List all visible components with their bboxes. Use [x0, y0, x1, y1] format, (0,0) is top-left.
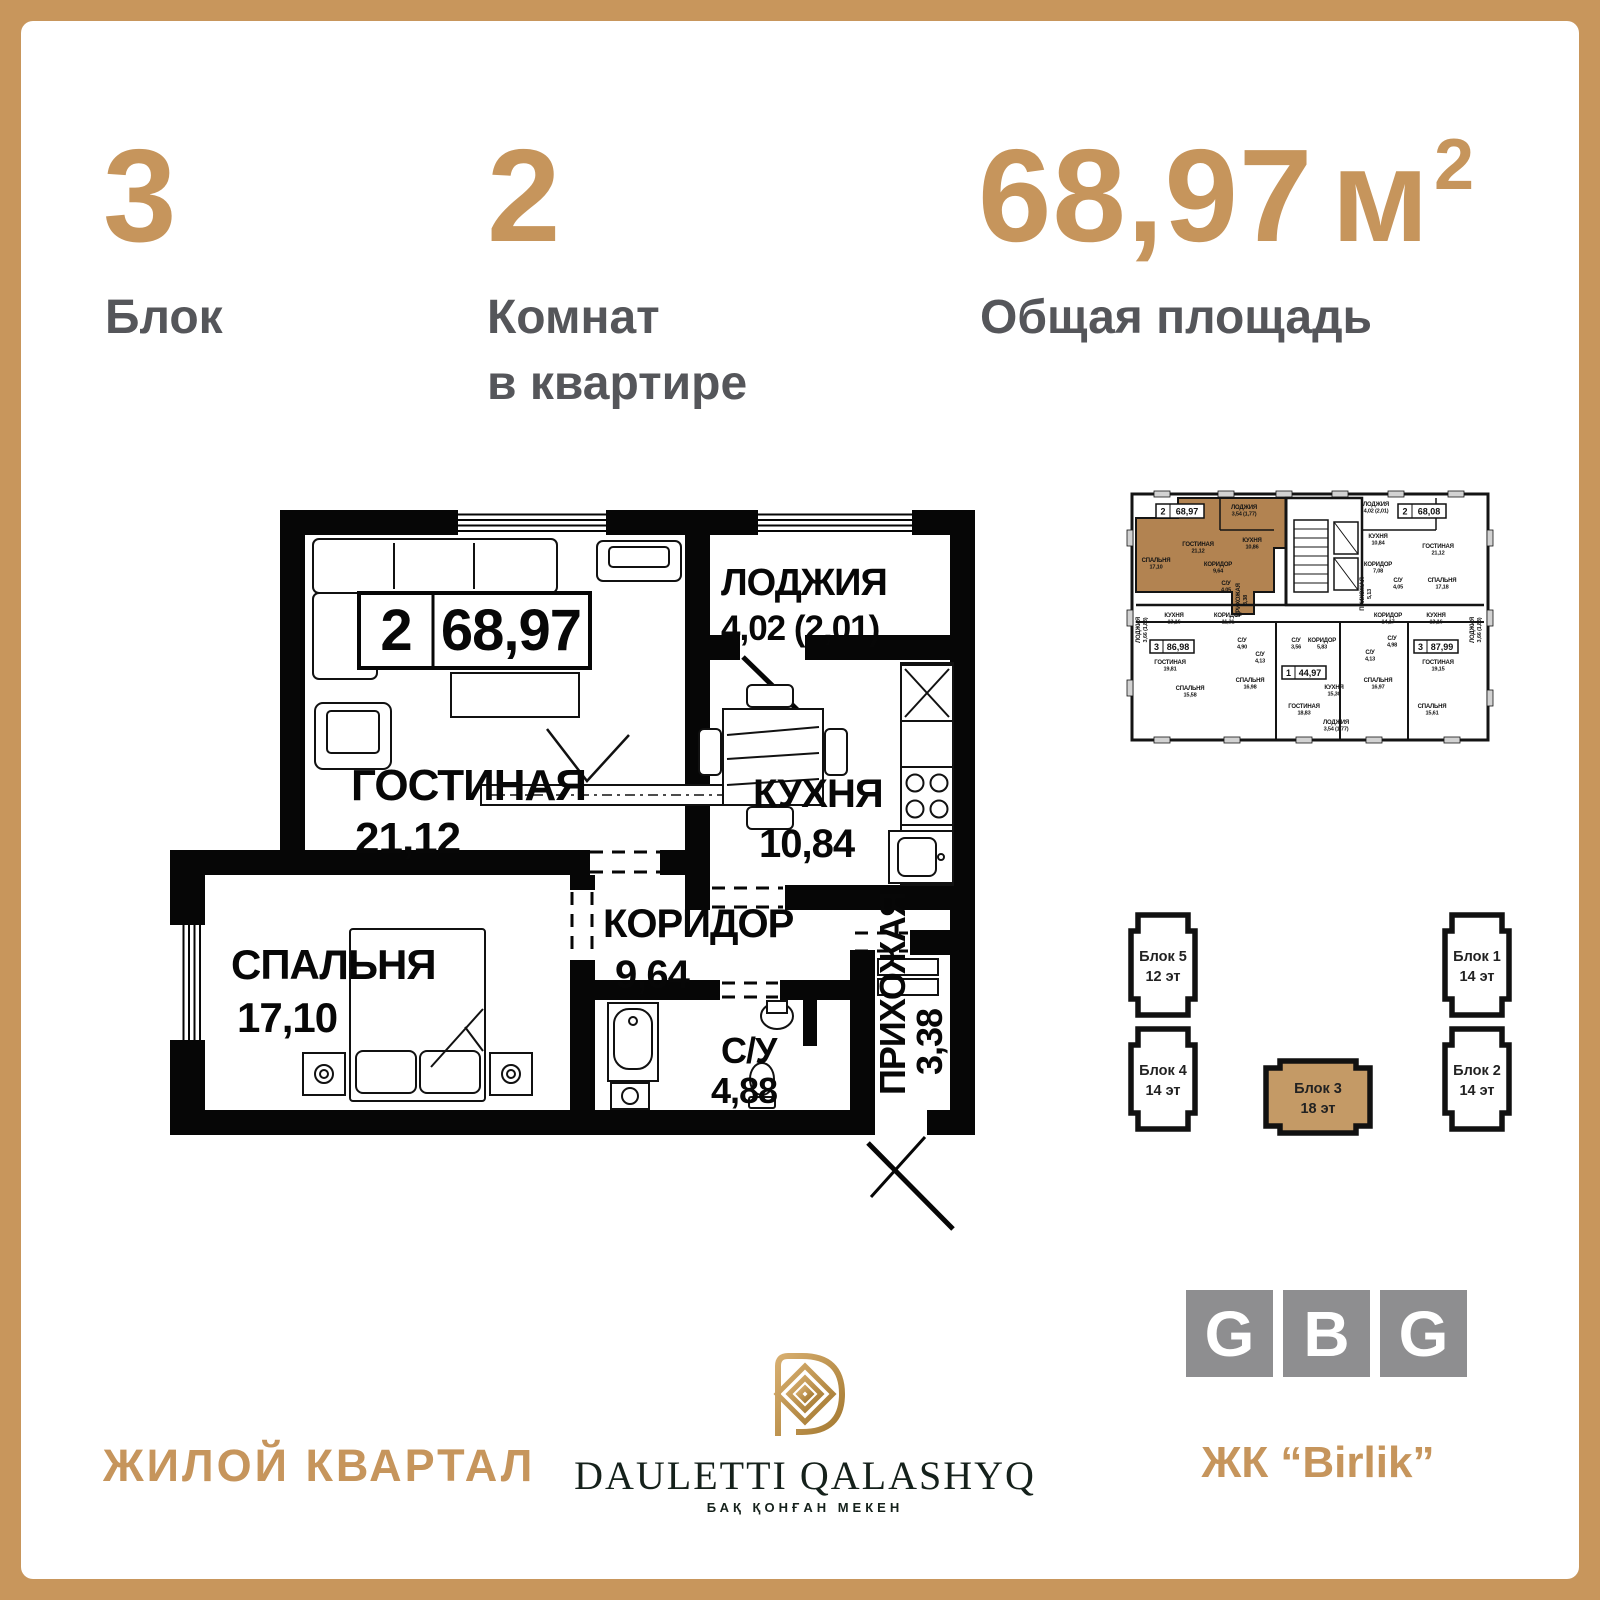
coffee-table	[451, 673, 579, 717]
chair	[825, 729, 847, 775]
fp-label: КУХНЯ	[1324, 685, 1343, 691]
block-5-floors: 12 эт	[1145, 969, 1180, 985]
fp-label: КОРИДОР	[1204, 562, 1232, 568]
block-number: 3	[103, 130, 177, 262]
fp-label: 14,17	[1382, 620, 1395, 626]
block-5-shape	[1131, 915, 1195, 1015]
block-4-shape	[1131, 1029, 1195, 1129]
fp-label: КУХНЯ	[1164, 613, 1183, 619]
fp-label: 4,98	[1387, 643, 1397, 649]
complex-name: ЖК “Birlik”	[1146, 1438, 1490, 1488]
plate-b-area: 68,08	[1418, 507, 1441, 517]
fp-label: СПАЛЬНЯ	[1236, 678, 1265, 684]
fp-label: 4,05	[1221, 588, 1231, 594]
developer-tagline: БАҚ ҚОНҒАН МЕКЕН	[505, 1500, 1105, 1515]
room-kitchen-area: 10,84	[759, 822, 856, 866]
fp-label: 5,13	[1367, 589, 1373, 599]
fp-label: КОРИДОР	[1374, 613, 1402, 619]
block-2-shape	[1445, 1029, 1509, 1129]
room-bedroom-name: СПАЛЬНЯ	[231, 941, 436, 988]
plate-b-rooms: 2	[1402, 507, 1407, 517]
fp-label: ГОСТИНАЯ	[1422, 544, 1454, 550]
rooms-number: 2	[487, 130, 561, 262]
plate-e-rooms: 3	[1418, 642, 1423, 652]
fp-label: КУХНЯ	[1426, 613, 1445, 619]
block-3-shape	[1266, 1061, 1370, 1133]
badge-area: 68,97	[441, 598, 581, 663]
plate-a-area: 68,97	[1176, 507, 1199, 517]
fp-label: 3,66 (1,83)	[1477, 617, 1483, 642]
fp-label: ЛОДЖИЯ	[1470, 617, 1476, 643]
fp-label: 4,13	[1255, 659, 1265, 665]
total-area-sup: 2	[1434, 129, 1475, 201]
fp-label: 19,81	[1164, 667, 1177, 673]
room-wc-name: С/У	[721, 1030, 778, 1071]
block-1-floors: 14 эт	[1459, 969, 1494, 985]
fp-label: ПРИХОЖАЯ	[1236, 583, 1242, 617]
plan-badge: 2 68,97	[359, 593, 590, 668]
badge-rooms: 2	[380, 598, 411, 663]
fp-label: 21,12	[1192, 549, 1205, 555]
block-4-name: Блок 4	[1139, 1063, 1187, 1079]
fp-label: 16,97	[1372, 685, 1385, 691]
fp-label: СПАЛЬНЯ	[1142, 558, 1171, 564]
gbg-letter-b: B	[1283, 1290, 1370, 1377]
rooms-label-line1: Комнат	[487, 285, 747, 351]
fp-label: СПАЛЬНЯ	[1176, 686, 1205, 692]
pillow	[356, 1051, 416, 1093]
room-kitchen-name: КУХНЯ	[753, 772, 883, 816]
total-area-label: Общая площадь	[980, 285, 1372, 351]
gbg-letter-g2: G	[1380, 1290, 1467, 1377]
block-3-floors: 18 эт	[1300, 1101, 1335, 1117]
fp-label: 5,83	[1317, 645, 1327, 651]
gbg-logo: G B G	[1186, 1290, 1467, 1377]
fp-label: 9,64	[1213, 569, 1224, 575]
fp-label: 10,84	[1372, 541, 1386, 547]
fp-label: 3,66 (1,83)	[1143, 617, 1149, 642]
room-living-area: 21,12	[355, 814, 460, 863]
block-label: Блок	[105, 285, 223, 351]
fp-label: КОРИДОР	[1364, 562, 1392, 568]
poster: 3 Блок 2 Комнат в квартире 68,97м2 Общая…	[0, 0, 1600, 1600]
fp-label: 16,98	[1244, 685, 1257, 691]
fp-label: КОРИДОР	[1214, 613, 1242, 619]
fp-label: 13,16	[1168, 620, 1181, 626]
room-corridor-name: КОРИДОР	[603, 902, 794, 946]
room-hall-name: ПРИХОЖАЯ	[872, 892, 913, 1095]
fp-label: 4,13	[1365, 657, 1375, 663]
fp-label: С/У	[1255, 652, 1265, 658]
block-4-floors: 14 эт	[1145, 1083, 1180, 1099]
fp-label: 3,38	[1243, 595, 1249, 605]
fp-label: 15,58	[1184, 693, 1197, 699]
plate-a-rooms: 2	[1160, 507, 1165, 517]
room-wc-area: 4,88	[711, 1070, 777, 1111]
fp-label: 17,10	[1150, 565, 1163, 571]
room-hall-area: 3,38	[909, 1009, 950, 1075]
chair	[747, 685, 793, 707]
fp-label: 13,16	[1430, 620, 1443, 626]
apartment-floorplan: 2 68,97 ГОСТИНАЯ 21,12 ЛОДЖИЯ 4,02 (2,01…	[165, 495, 1025, 1235]
room-loggia-area: 4,02 (2,01)	[721, 609, 879, 648]
room-loggia-name: ЛОДЖИЯ	[721, 562, 887, 604]
gbg-letter-g1: G	[1186, 1290, 1273, 1377]
block-5-name: Блок 5	[1139, 949, 1187, 965]
pillow	[420, 1051, 480, 1093]
fp-label: 4,90	[1237, 645, 1247, 651]
fp-label: 7,08	[1373, 569, 1383, 575]
fp-label: 15,61	[1426, 711, 1439, 717]
block-2-name: Блок 2	[1453, 1063, 1501, 1079]
fp-label: ЛОДЖИЯ	[1323, 720, 1349, 726]
fp-label: КОРИДОР	[1308, 638, 1336, 644]
fp-label: С/У	[1291, 638, 1301, 644]
developer-name: DAULETTI QALASHYQ	[505, 1452, 1105, 1499]
fp-label: СПАЛЬНЯ	[1364, 678, 1393, 684]
sofa	[313, 539, 557, 593]
total-area-unit: м	[1331, 122, 1430, 269]
fp-label: КУХНЯ	[1242, 538, 1261, 544]
fp-label: 21,12	[1432, 551, 1445, 557]
fp-label: С/У	[1237, 638, 1247, 644]
fp-label: 19,15	[1432, 667, 1445, 673]
fp-label: ГОСТИНАЯ	[1288, 704, 1320, 710]
fp-label: 4,05	[1393, 585, 1403, 591]
total-area-value: 68,97	[978, 122, 1313, 269]
fp-label: ГОСТИНАЯ	[1182, 542, 1214, 548]
rooms-label: Комнат в квартире	[487, 285, 747, 417]
fp-label: ПРИХОЖАЯ	[1360, 577, 1366, 611]
fp-label: 18,83	[1298, 711, 1311, 717]
developer-logo-icon	[750, 1348, 860, 1440]
fp-label: СПАЛЬНЯ	[1418, 704, 1447, 710]
fp-label: 4,02 (2,01)	[1364, 509, 1389, 515]
plate-d-area: 44,97	[1299, 668, 1322, 678]
fp-label: С/У	[1387, 636, 1397, 642]
d-monogram	[777, 1356, 842, 1436]
district-label: ЖИЛОЙ КВАРТАЛ	[103, 1440, 535, 1492]
plate-c-area: 86,98	[1167, 642, 1190, 652]
block-1-shape	[1445, 915, 1509, 1015]
total-area: 68,97м2	[978, 130, 1475, 262]
plate-d-rooms: 1	[1286, 668, 1291, 678]
fp-label: ГОСТИНАЯ	[1154, 660, 1186, 666]
fp-label: ЛОДЖИЯ	[1231, 505, 1257, 511]
plate-c-rooms: 3	[1154, 642, 1159, 652]
stove	[901, 767, 953, 825]
block-2-floors: 14 эт	[1459, 1083, 1494, 1099]
blocks-diagram: Блок 5 12 эт Блок 4 14 эт Блок 3 18 эт Б…	[1100, 905, 1520, 1145]
room-corridor-area: 9,64	[615, 953, 691, 997]
chair	[699, 729, 721, 775]
room-bedroom-area: 17,10	[237, 994, 337, 1041]
fp-label: 3,54 (1,77)	[1324, 727, 1349, 733]
fp-label: СПАЛЬНЯ	[1428, 578, 1457, 584]
fp-label: 17,18	[1436, 585, 1449, 591]
fp-label: 3,54 (1,77)	[1232, 512, 1257, 518]
room-living-name: ГОСТИНАЯ	[351, 761, 586, 810]
fp-label: ЛОДЖИЯ	[1136, 617, 1142, 643]
fp-label: 11,31	[1222, 620, 1235, 626]
fp-label: С/У	[1221, 581, 1231, 587]
block-3-name: Блок 3	[1294, 1081, 1342, 1097]
floorplate-overview: 2 68,97 2 68,08 3 86,98 1 44,97 3 87,99 …	[1126, 490, 1494, 748]
fp-label: ГОСТИНАЯ	[1422, 660, 1454, 666]
plate-e-area: 87,99	[1431, 642, 1454, 652]
fp-label: 3,56	[1291, 645, 1301, 651]
fp-label: 10,86	[1246, 545, 1259, 551]
fp-label: 15,30	[1328, 692, 1341, 698]
fp-label: КУХНЯ	[1368, 534, 1387, 540]
fp-label: С/У	[1365, 650, 1375, 656]
rooms-label-line2: в квартире	[487, 351, 747, 417]
fp-label: С/У	[1393, 578, 1403, 584]
block-1-name: Блок 1	[1453, 949, 1501, 965]
fp-label: ЛОДЖИЯ	[1363, 502, 1389, 508]
